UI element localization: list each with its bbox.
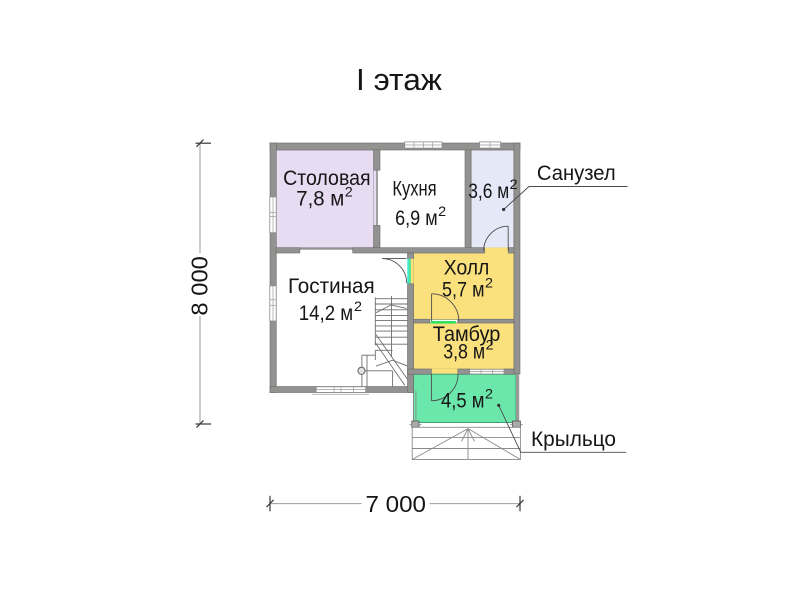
svg-text:I этаж: I этаж <box>356 62 442 97</box>
svg-text:7,8 м: 7,8 м <box>296 188 344 211</box>
svg-text:5,7 м: 5,7 м <box>442 278 485 301</box>
svg-text:2: 2 <box>485 386 493 401</box>
svg-text:6,9 м: 6,9 м <box>395 207 438 230</box>
svg-text:2: 2 <box>485 275 493 290</box>
svg-text:7 000: 7 000 <box>366 491 427 517</box>
svg-text:Холл: Холл <box>444 256 490 279</box>
svg-text:Крыльцо: Крыльцо <box>531 428 616 451</box>
svg-text:4,5 м: 4,5 м <box>441 389 485 412</box>
svg-text:2: 2 <box>510 177 518 192</box>
svg-text:3,8 м: 3,8 м <box>443 340 485 363</box>
svg-text:2: 2 <box>354 299 362 314</box>
svg-text:Столовая: Столовая <box>283 167 371 190</box>
svg-text:Гостиная: Гостиная <box>288 275 375 298</box>
svg-text:2: 2 <box>486 337 494 352</box>
svg-text:8 000: 8 000 <box>187 256 213 316</box>
svg-text:Кухня: Кухня <box>392 178 436 201</box>
svg-text:2: 2 <box>438 204 446 219</box>
svg-text:2: 2 <box>345 185 353 200</box>
svg-text:3,6 м: 3,6 м <box>468 180 509 203</box>
svg-text:14,2 м: 14,2 м <box>299 302 354 325</box>
svg-text:Санузел: Санузел <box>537 162 616 185</box>
